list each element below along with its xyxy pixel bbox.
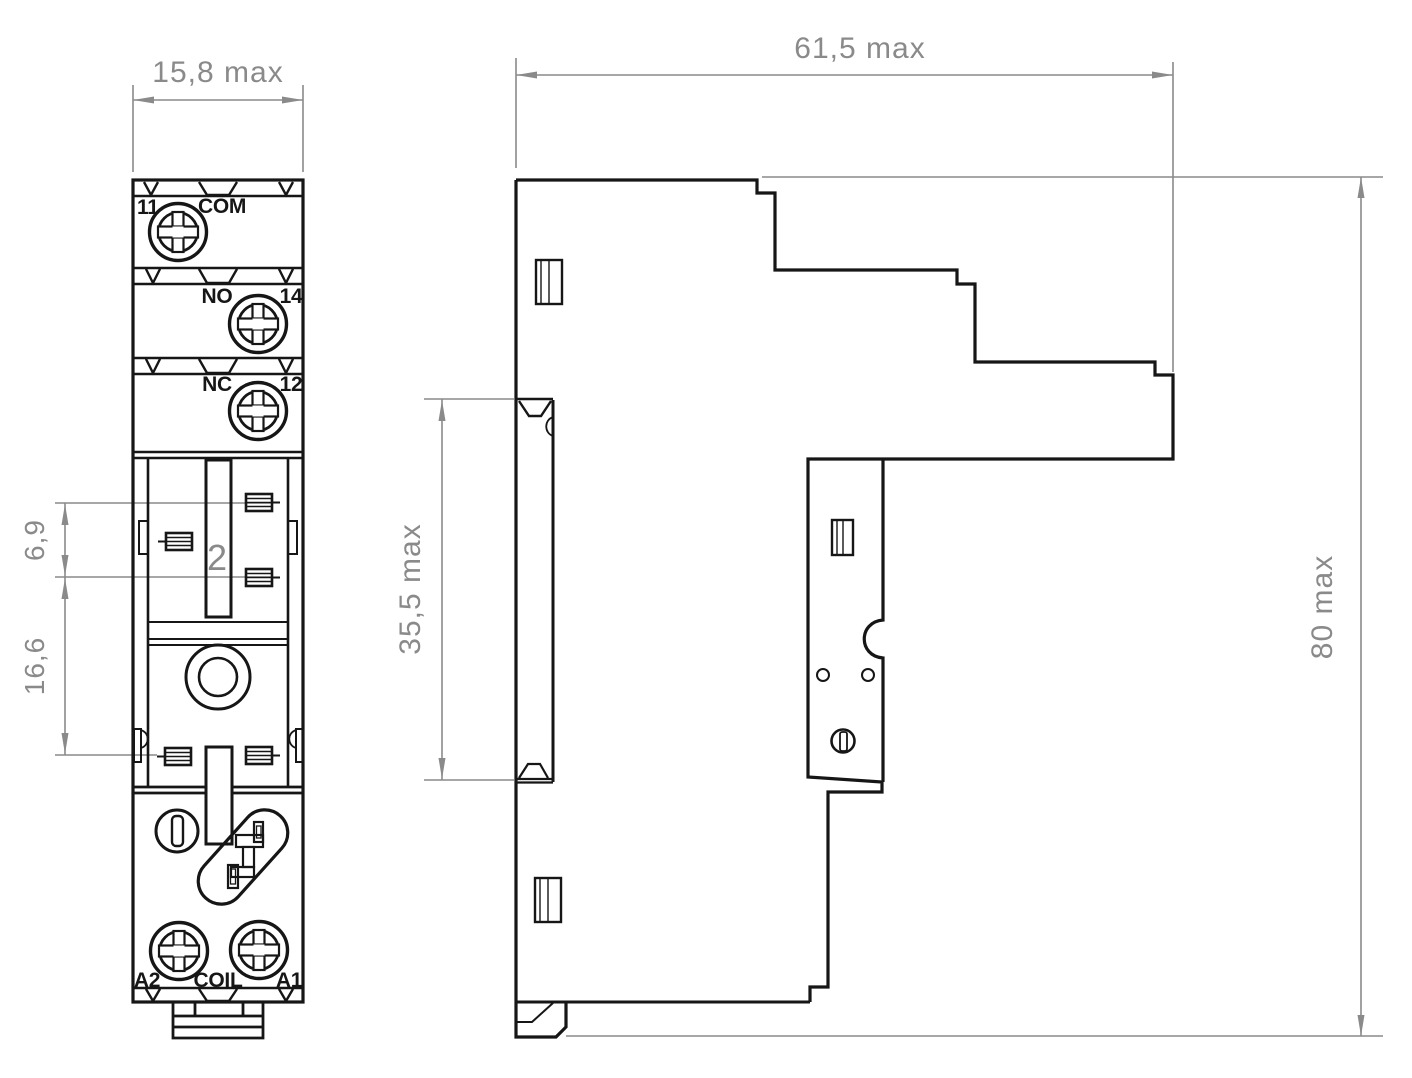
- terminal-name-com: COM: [198, 195, 246, 218]
- test-button-slot: [172, 816, 183, 846]
- relay-socket-dimensional-drawing: 15,8 max 61,5 max 80 max 35,5 max 6,9 16…: [0, 0, 1412, 1078]
- side-width-dim-label: 61,5 max: [794, 32, 925, 65]
- spring-arc: [289, 730, 296, 748]
- arrow-up-icon: [439, 400, 446, 421]
- arrow-left-icon: [133, 97, 154, 104]
- terminal-name-nc: NC: [202, 373, 232, 396]
- vent-slot: [535, 878, 561, 922]
- din-hook-top: [516, 399, 553, 416]
- dimension-front-width: 15,8 max: [133, 56, 303, 172]
- terminal-name-a1: A1: [276, 969, 303, 992]
- side-outline-stepped: [516, 180, 1173, 1002]
- terminal-name-no: NO: [202, 285, 233, 308]
- din-hook-bottom: [516, 764, 553, 783]
- terminal-name-a2: A2: [134, 969, 160, 992]
- cavity-shelf-lines: [148, 622, 288, 645]
- divider-band-1: [133, 268, 303, 284]
- dimension-rail-section: 35,5 max: [394, 399, 514, 780]
- arrow-down-icon: [439, 758, 446, 779]
- arrow-left-icon: [516, 72, 537, 79]
- pin-hole: [862, 669, 874, 681]
- row-spacing-dim-label: 16,6: [19, 637, 50, 696]
- dimension-side-width: 61,5 max: [516, 32, 1173, 372]
- rail-section-dim-label: 35,5 max: [394, 523, 427, 654]
- top-notch-band: [133, 182, 303, 196]
- foot-wedge: [516, 1003, 553, 1022]
- block-right-edge: [864, 459, 883, 782]
- pin-hole: [817, 669, 829, 681]
- contact-pitch-dim-label: 6,9: [19, 519, 50, 561]
- back-edge-and-foot: [516, 180, 566, 1037]
- dimension-contact-pitch: 6,9 16,6: [19, 503, 272, 755]
- divider-double-line: [133, 452, 303, 458]
- technical-drawing-page: 15,8 max 61,5 max 80 max 35,5 max 6,9 16…: [0, 0, 1412, 1078]
- block-vent-slot: [832, 520, 853, 555]
- terminal-number-11: 11: [137, 196, 159, 219]
- edge-tab: [139, 521, 148, 554]
- edge-tab: [134, 729, 141, 762]
- side-screw-head: [832, 730, 855, 753]
- din-clip-tab: [173, 1002, 263, 1038]
- vent-slot: [536, 260, 562, 304]
- screw-terminal-12-nc: [230, 383, 287, 440]
- divider-band-2: [133, 358, 303, 374]
- edge-tab: [288, 521, 297, 554]
- arrow-right-icon: [1152, 72, 1173, 79]
- arrow-down-icon: [62, 555, 69, 576]
- contact-slot: [165, 748, 191, 765]
- mounting-hole-outer: [186, 645, 250, 709]
- coil-label: COIL: [194, 969, 243, 992]
- arrow-up-icon: [62, 578, 69, 599]
- contact-slot: [246, 494, 272, 511]
- pole-marking: 2: [207, 537, 227, 578]
- arrow-down-icon: [62, 733, 69, 754]
- side-screw-slot: [840, 732, 847, 751]
- arrow-down-icon: [1358, 1015, 1365, 1036]
- arrow-up-icon: [1358, 177, 1365, 198]
- side-view: [516, 180, 1173, 1037]
- mounting-hole-inner: [199, 658, 237, 696]
- front-width-dim-label: 15,8 max: [152, 56, 283, 89]
- contact-slot: [166, 533, 192, 550]
- front-view: 11 COM NO 14 NC 12 A2 COIL A1 2: [133, 180, 303, 1038]
- contact-slot: [246, 569, 272, 586]
- terminal-number-12: 12: [280, 373, 303, 396]
- height-dim-label: 80 max: [1306, 555, 1339, 659]
- contact-slot: [246, 747, 272, 764]
- arrow-right-icon: [282, 97, 303, 104]
- screw-terminal-14-no: [230, 296, 287, 353]
- release-lever: [206, 747, 232, 844]
- terminal-number-14: 14: [280, 285, 303, 308]
- arrow-up-icon: [62, 504, 69, 525]
